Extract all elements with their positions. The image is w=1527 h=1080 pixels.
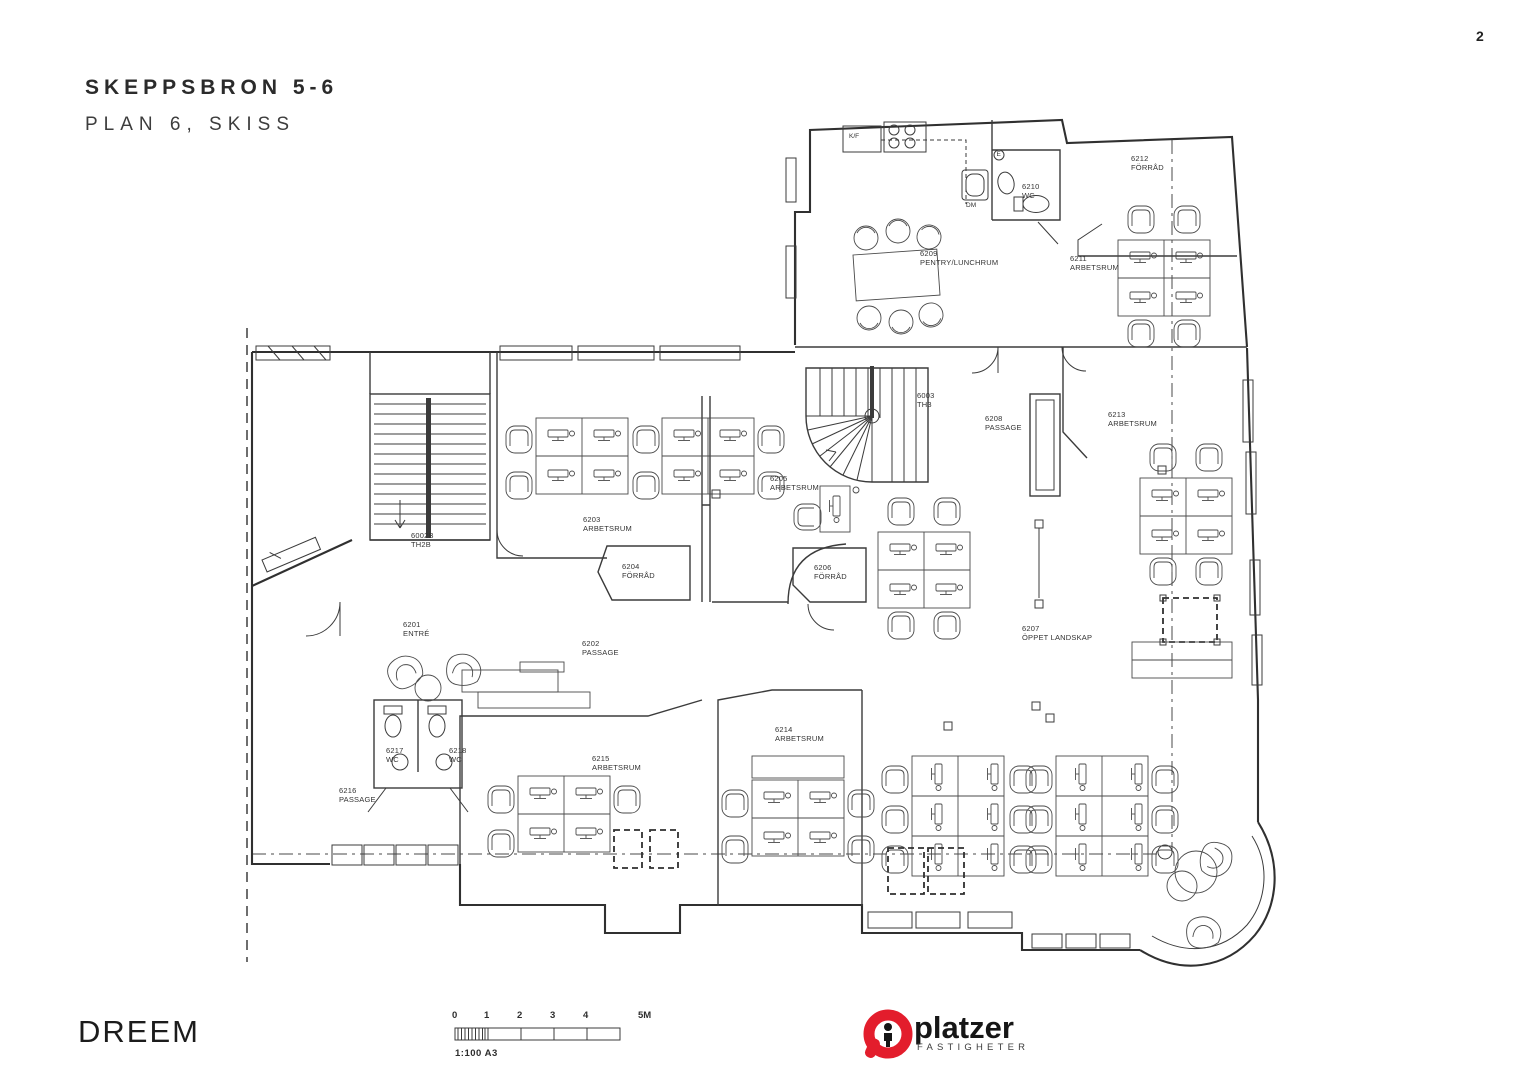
scale-tick-4: 4 xyxy=(583,1010,588,1021)
room-label-6213: 6213ARBETSRUM xyxy=(1108,410,1157,429)
room-6213-furniture xyxy=(1132,444,1232,678)
scale-tick-3: 3 xyxy=(550,1010,555,1021)
room-label-6209: 6209PENTRY/LUNCHRUM xyxy=(920,249,998,268)
vent-label: E xyxy=(997,151,1001,158)
platzer-logo-name: platzer xyxy=(914,1010,1014,1046)
room-label-6206: 6206FÖRRÅD xyxy=(814,563,847,582)
room-label-6216: 6216PASSAGE xyxy=(339,786,376,805)
room-label-6218: 6218WC xyxy=(449,746,467,765)
room-label-6207: 6207ÖPPET LANDSKAP xyxy=(1022,624,1092,643)
scale-bar xyxy=(455,1028,620,1040)
room-label-6208: 6208PASSAGE xyxy=(985,414,1022,433)
window-bays xyxy=(256,158,1262,948)
scale-tick-5m: 5M xyxy=(638,1010,651,1021)
room-label-6214: 6214ARBETSRUM xyxy=(775,725,824,744)
scale-tick-2: 2 xyxy=(517,1010,522,1021)
room-6203-furniture xyxy=(506,418,784,499)
stair-th3-icon xyxy=(806,366,928,482)
platzer-logo-icon xyxy=(862,1008,914,1066)
room-label-6210: 6210WC xyxy=(1022,182,1040,201)
floor-plan-drawing xyxy=(0,0,1527,1080)
room-6205-furniture xyxy=(794,486,859,532)
entrance-area xyxy=(306,602,590,708)
exterior-walls xyxy=(252,120,1275,966)
room-label-6202: 6202PASSAGE xyxy=(582,639,619,658)
room-6215 xyxy=(460,700,702,868)
room-label-6204: 6204FÖRRÅD xyxy=(622,562,655,581)
dreem-logo: DREEM xyxy=(78,1014,200,1050)
open-landscape-furniture xyxy=(712,490,1178,894)
lunch-table-group xyxy=(853,219,945,334)
room-label-6215: 6215ARBETSRUM xyxy=(592,754,641,773)
room-label-6205: 6205ARBETSRUM xyxy=(770,474,819,493)
room-label-6217: 6217WC xyxy=(386,746,404,765)
room-6212-6211-walls xyxy=(1078,206,1237,347)
dishwasher-label: DM xyxy=(966,202,976,209)
platzer-logo-sub: FASTIGHETER xyxy=(917,1042,1029,1053)
room-label-6212: 6212FÖRRÅD xyxy=(1131,154,1164,173)
room-label-6211: 6211ARBETSRUM xyxy=(1070,254,1119,273)
scale-tick-1: 1 xyxy=(484,1010,489,1021)
stair-th2b-icon xyxy=(370,352,490,540)
floor-plan-page: SKEPPSBRON 5-6 PLAN 6, SKISS 2 xyxy=(0,0,1527,1080)
room-label-6201: 6201ENTRÉ xyxy=(403,620,429,639)
platzer-logo: platzer FASTIGHETER xyxy=(862,1008,1032,1066)
scale-note: 1:100 A3 xyxy=(455,1048,498,1059)
fridge-freezer-label: K/F xyxy=(849,133,859,140)
room-label-6203: 6203ARBETSRUM xyxy=(583,515,632,534)
room-label-6002b: 6002BTH2B xyxy=(411,531,434,550)
room-6214 xyxy=(718,690,874,906)
scale-tick-0: 0 xyxy=(452,1010,457,1021)
room-label-6003: 6003TH3 xyxy=(917,391,935,410)
